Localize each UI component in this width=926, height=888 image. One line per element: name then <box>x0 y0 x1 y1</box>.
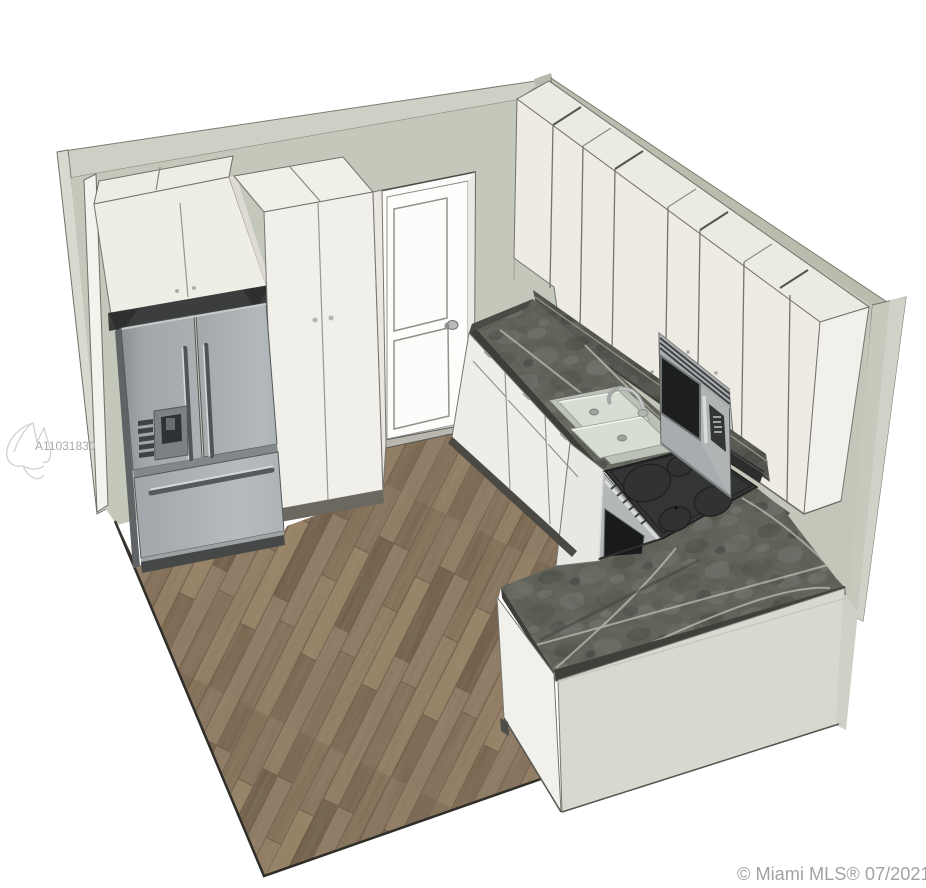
svg-text:© Miami MLS® 07/2021: © Miami MLS® 07/2021 <box>737 864 926 884</box>
svg-text:A11031830: A11031830 <box>35 439 96 453</box>
